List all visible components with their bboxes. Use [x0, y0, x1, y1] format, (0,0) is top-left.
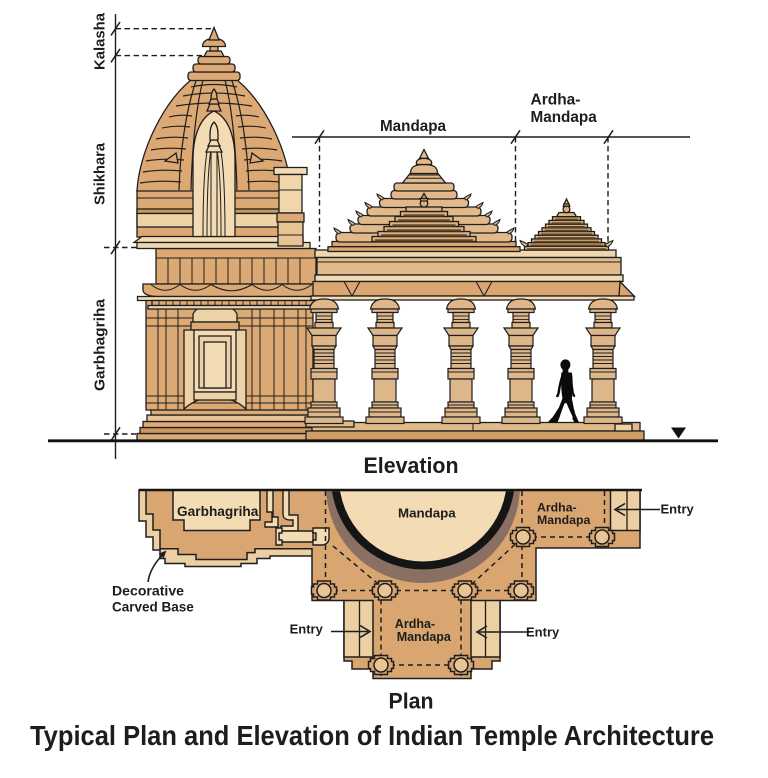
svg-text:Entry: Entry	[661, 502, 695, 517]
svg-text:Kalasha: Kalasha	[92, 12, 109, 70]
svg-text:Carved Base: Carved Base	[112, 600, 194, 615]
svg-text:Garbhagriha: Garbhagriha	[177, 504, 259, 519]
svg-text:Entry: Entry	[526, 625, 560, 640]
svg-text:Ardha-: Ardha-	[531, 92, 581, 109]
svg-text:Elevation: Elevation	[364, 453, 459, 478]
svg-text:Decorative: Decorative	[112, 584, 185, 599]
svg-text:Plan: Plan	[389, 689, 434, 714]
svg-text:Mandapa: Mandapa	[537, 513, 590, 527]
svg-text:Garbhagriha: Garbhagriha	[92, 298, 109, 391]
svg-text:Mandapa: Mandapa	[398, 506, 456, 521]
svg-text:Typical Plan and Elevation of: Typical Plan and Elevation of Indian Tem…	[30, 720, 714, 751]
svg-text:Mandapa: Mandapa	[380, 118, 446, 135]
svg-text:Mandapa: Mandapa	[397, 630, 452, 644]
svg-text:Shikhara: Shikhara	[92, 142, 109, 205]
svg-text:Ardha-: Ardha-	[395, 617, 435, 631]
svg-text:Entry: Entry	[290, 622, 324, 637]
svg-text:Mandapa: Mandapa	[531, 109, 598, 126]
